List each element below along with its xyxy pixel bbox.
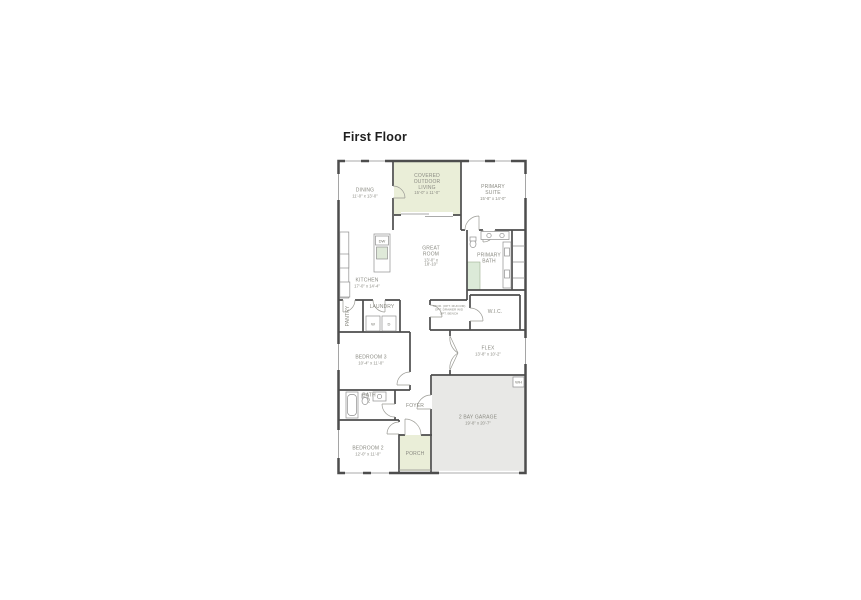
room-name: PANTRY (346, 301, 352, 331)
room-label-dining: DINING 11'-0" x 13'-0" (343, 189, 387, 200)
room-label-bath-2: BATH 2 (361, 393, 377, 405)
room-dims: 15'-8" x 14'-0" (476, 196, 510, 201)
room-label-kitchen: KITCHEN 17'-0" x 14'-4" (345, 279, 389, 290)
room-name: LAUNDRY (362, 305, 402, 311)
room-name: PRIMARY SUITE (476, 185, 510, 197)
room-label-primary-suite: PRIMARY SUITE 15'-8" x 14'-0" (476, 185, 510, 201)
room-dims: 10'-4" x 11'-0" (346, 361, 396, 366)
room-label-foyer: FOYER (400, 404, 430, 410)
room-label-garage: 2 BAY GARAGE 19'-8" x 20'-7" (448, 416, 508, 427)
room-label-laundry: LAUNDRY (362, 305, 402, 311)
room-name: GREAT ROOM (417, 246, 445, 258)
room-name: PRIMARY BATH (476, 253, 502, 265)
room-name: W.I.C. (480, 310, 510, 316)
room-label-primary-bath: PRIMARY BATH (476, 253, 502, 265)
room-label-wic: W.I.C. (480, 310, 510, 316)
room-dims: 11'-0" x 13'-0" (343, 194, 387, 199)
room-name: BATH 2 (361, 393, 377, 405)
dryer-label: D (388, 321, 391, 326)
room-dims: 17'-0" x 14'-4" (345, 284, 389, 289)
washer-label: W (371, 321, 375, 326)
dishwasher-label: DW (379, 238, 386, 243)
floor-plan: DINING 11'-0" x 13'-0" COVERED OUTDOOR L… (337, 158, 527, 476)
room-dims: 13'-8" x 10'-2" (466, 352, 510, 357)
option-note: STOR. (OPT. MUD RM) OPT. DRAWER W/D OPT.… (432, 304, 467, 315)
floor-plan-drawing (337, 158, 527, 476)
room-dims: 19'-8" x 20'-7" (448, 421, 508, 426)
page: { "page": { "title": "First Floor" }, "p… (0, 0, 861, 600)
room-label-great-room: GREAT ROOM 13'-0" x 18'-10" (417, 246, 445, 267)
room-name: FOYER (400, 404, 430, 410)
room-dims: 12'-0" x 11'-0" (343, 452, 393, 457)
room-name: PORCH (400, 452, 430, 458)
room-name: COVERED OUTDOOR LIVING (407, 174, 447, 191)
room-label-porch: PORCH (400, 452, 430, 458)
room-label-bedroom-3: BEDROOM 3 10'-4" x 11'-0" (346, 356, 396, 367)
room-dims: 13'-0" x 18'-10" (417, 258, 445, 268)
water-heater-label: WH (515, 380, 522, 385)
room-label-pantry: PANTRY (346, 301, 352, 331)
room-label-covered-outdoor-living: COVERED OUTDOOR LIVING 15'-0" x 11'-0" (407, 174, 447, 196)
page-title: First Floor (343, 130, 407, 144)
room-dims: 15'-0" x 11'-0" (407, 191, 447, 196)
room-label-bedroom-2: BEDROOM 2 12'-0" x 11'-0" (343, 447, 393, 458)
room-label-flex: FLEX 13'-8" x 10'-2" (466, 347, 510, 358)
